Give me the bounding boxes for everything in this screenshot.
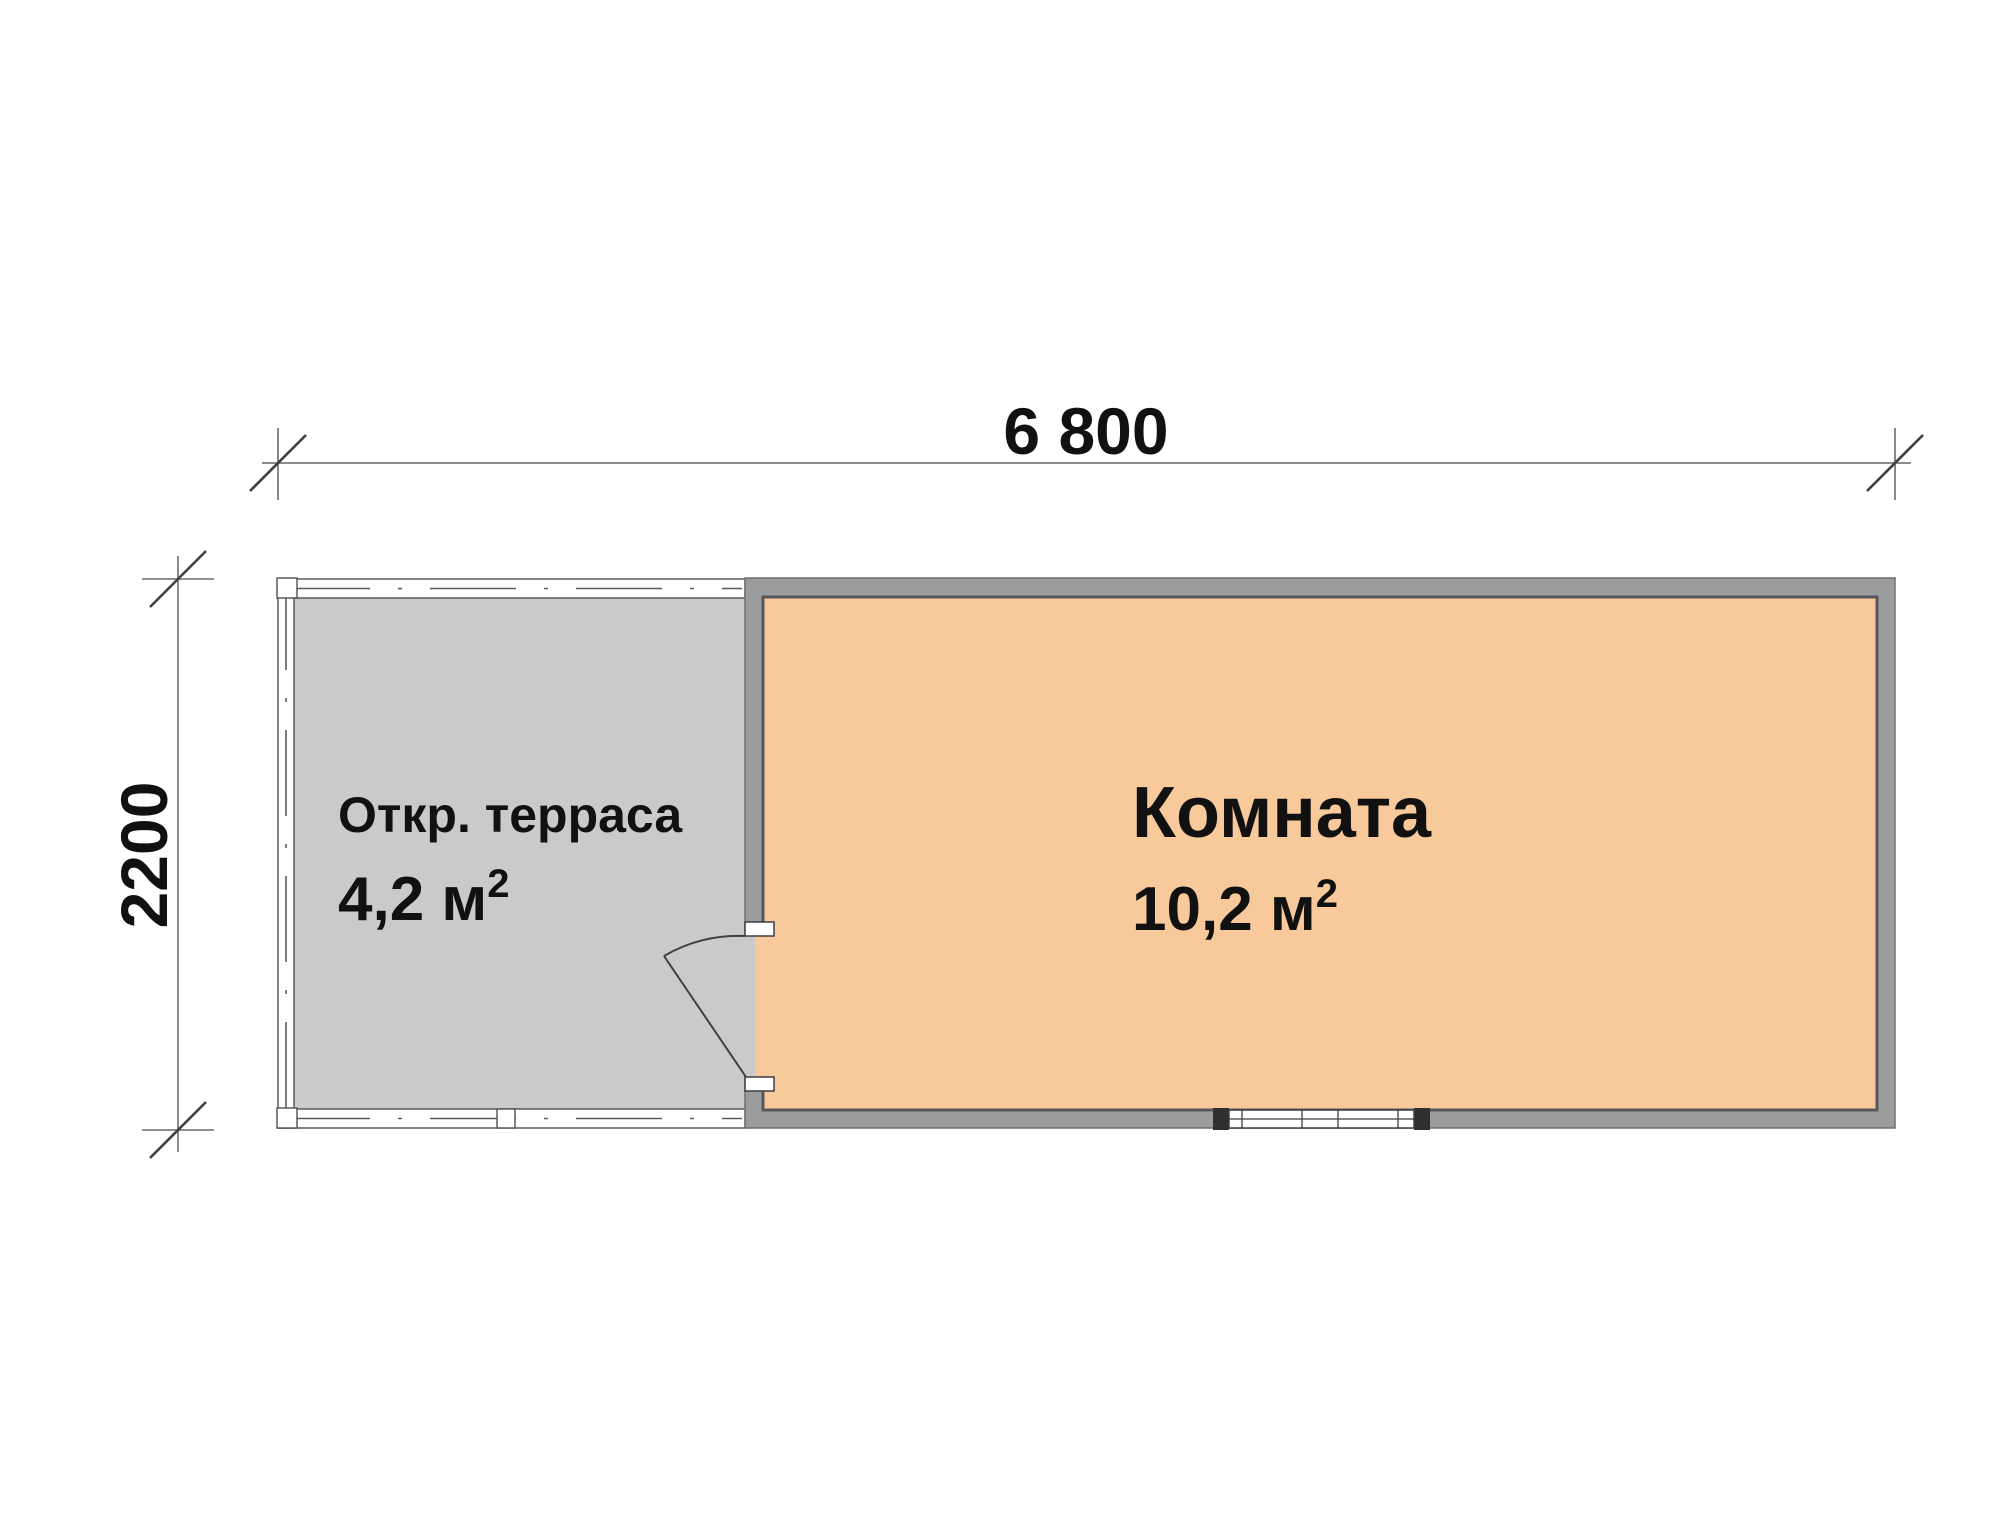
terrace-post-bottom-mid (497, 1109, 515, 1128)
terrace-post-bottom-left (277, 1108, 297, 1128)
door-jamb-top (745, 922, 774, 936)
room-name-label: Комната (1132, 773, 1432, 853)
room-area-label: 10,2 м2 (1132, 872, 1338, 944)
window-cap-left (1213, 1108, 1229, 1130)
floor-plan-page: 6 800 2200 Откр. те (0, 0, 2000, 1539)
terrace-post-top-left (277, 578, 297, 598)
height-dimension-label: 2200 (107, 782, 181, 929)
floor-plan: 6 800 2200 Откр. те (0, 0, 2000, 1539)
window (1213, 1108, 1430, 1130)
window-cap-right (1414, 1108, 1430, 1130)
terrace-floor (294, 598, 745, 1109)
terrace: Откр. терраса 4,2 м2 (277, 578, 745, 1128)
door-jamb-bottom (745, 1077, 774, 1091)
terrace-area-label: 4,2 м2 (338, 862, 510, 934)
door-opening-terrace-side (744, 936, 755, 1077)
terrace-name-label: Откр. терраса (338, 787, 683, 843)
room-floor (763, 597, 1877, 1110)
door-opening-room-side (755, 936, 767, 1077)
room: Комната 10,2 м2 (664, 578, 1895, 1130)
width-dimension-label: 6 800 (1003, 394, 1168, 468)
